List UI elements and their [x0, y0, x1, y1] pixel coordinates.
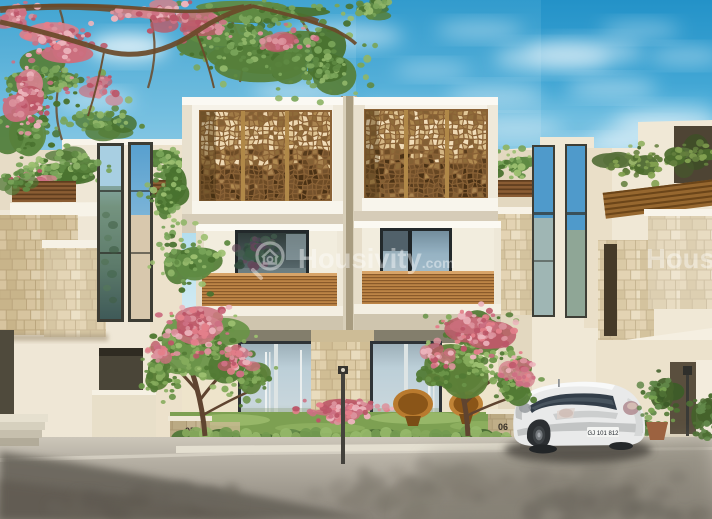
svg-text:Housi: Housi: [646, 243, 712, 274]
svg-text:GJ 101 812: GJ 101 812: [587, 431, 619, 437]
svg-text:06: 06: [498, 422, 508, 432]
